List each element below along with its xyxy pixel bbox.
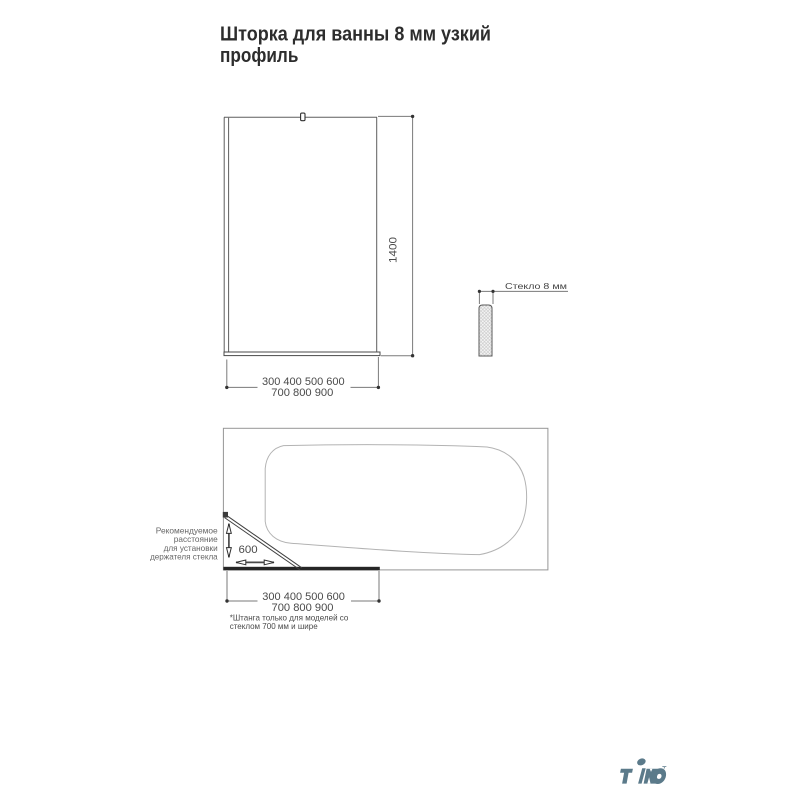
svg-text:держателя стекла: держателя стекла (150, 553, 218, 562)
svg-text:для установки: для установки (164, 544, 218, 553)
svg-text:расстояние: расстояние (174, 535, 218, 544)
svg-text:стеклом 700 мм и шире: стеклом 700 мм и шире (230, 622, 318, 631)
svg-text:600: 600 (239, 544, 258, 556)
svg-text:Рекомендуемое: Рекомендуемое (156, 527, 218, 536)
svg-text:1400: 1400 (388, 237, 400, 263)
svg-text:700 800 900: 700 800 900 (271, 387, 333, 399)
svg-text:700 800 900: 700 800 900 (272, 602, 334, 614)
svg-text:Стекло 8 мм: Стекло 8 мм (505, 281, 567, 291)
svg-text:Шторка для ванны 8 мм узкий: Шторка для ванны 8 мм узкий (220, 23, 491, 45)
svg-text:профиль: профиль (220, 45, 298, 67)
svg-text:300 400 500 600: 300 400 500 600 (262, 591, 345, 603)
